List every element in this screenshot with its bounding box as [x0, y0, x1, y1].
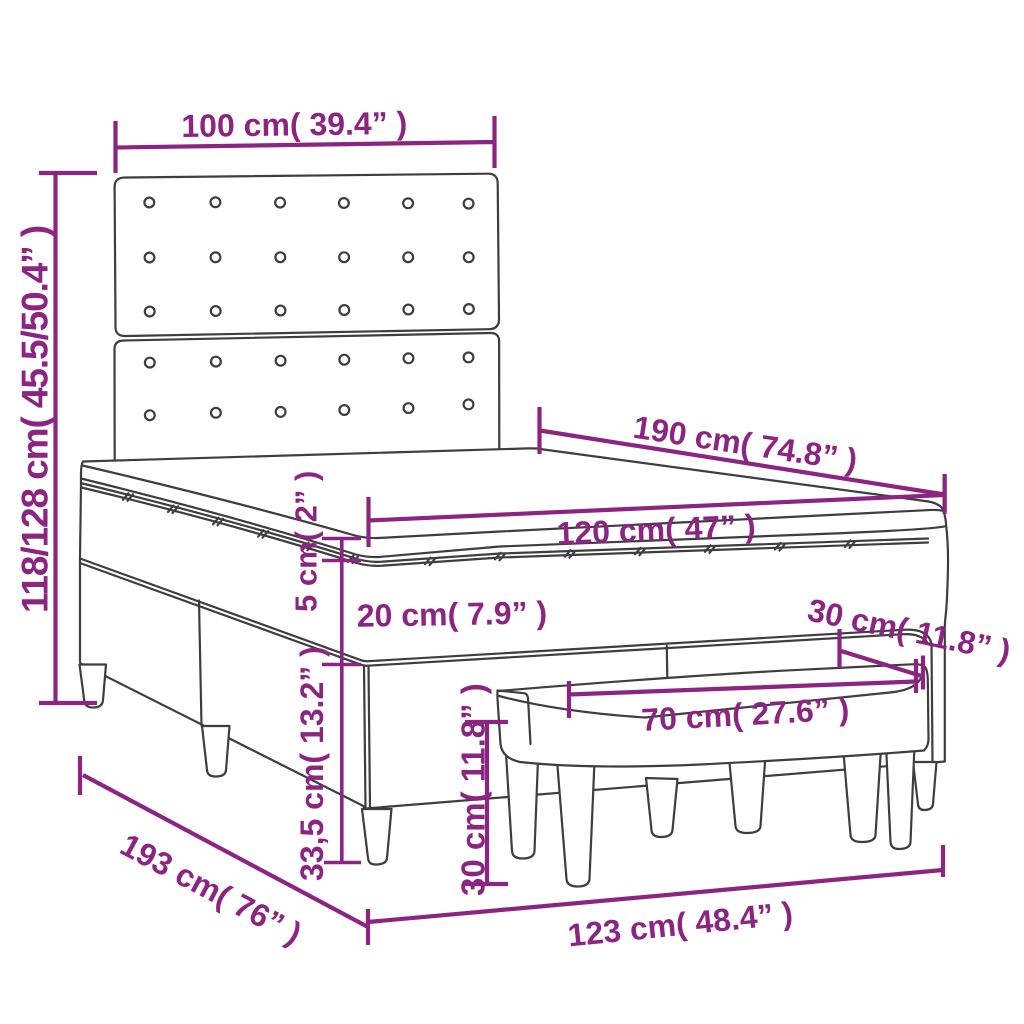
svg-text:100 cm( 39.4” ): 100 cm( 39.4” ) — [181, 105, 407, 144]
svg-text:5 cm( 2” ): 5 cm( 2” ) — [289, 471, 324, 612]
svg-text:20 cm( 7.9” ): 20 cm( 7.9” ) — [356, 594, 547, 633]
svg-text:123 cm( 48.4” ): 123 cm( 48.4” ) — [566, 895, 794, 954]
svg-text:30 cm( 11.8” ): 30 cm( 11.8” ) — [455, 683, 492, 896]
svg-text:33,5 cm( 13.2” ): 33,5 cm( 13.2” ) — [294, 646, 330, 881]
svg-text:118/128 cm( 45.5/50.4” ): 118/128 cm( 45.5/50.4” ) — [15, 226, 56, 613]
